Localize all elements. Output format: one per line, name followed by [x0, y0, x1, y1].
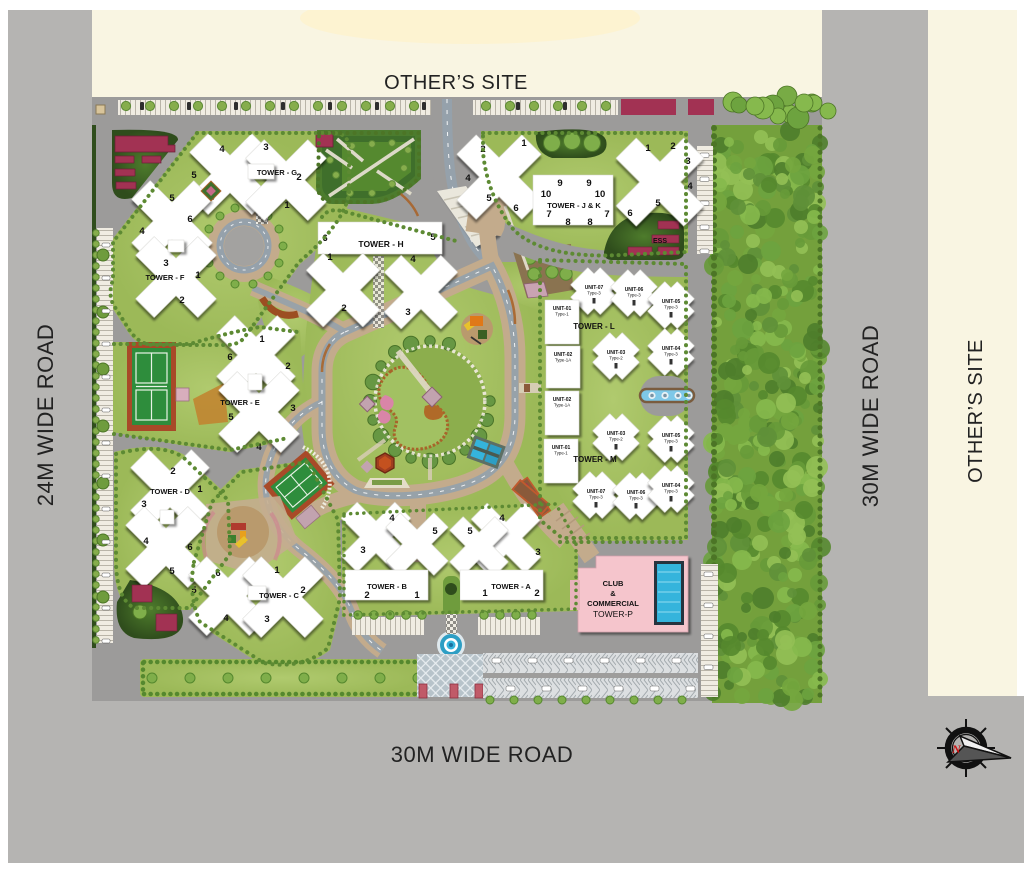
svg-text:4: 4	[465, 173, 471, 184]
svg-text:N: N	[951, 742, 962, 756]
svg-text:ESS: ESS	[653, 238, 667, 245]
svg-text:TOWER - C: TOWER - C	[259, 591, 299, 600]
svg-text:TOWER - L: TOWER - L	[573, 322, 615, 331]
svg-text:Type-2: Type-2	[609, 356, 623, 361]
svg-text:OTHER’S SITE: OTHER’S SITE	[384, 72, 528, 94]
svg-text:1: 1	[259, 334, 265, 345]
svg-text:6: 6	[227, 352, 232, 363]
svg-text:1: 1	[521, 138, 527, 149]
svg-text:3: 3	[290, 403, 295, 414]
svg-text:4: 4	[223, 613, 229, 624]
svg-text:TOWER - A: TOWER - A	[491, 582, 531, 591]
svg-text:TOWER-P: TOWER-P	[593, 609, 633, 619]
svg-text:Type-3: Type-3	[664, 439, 678, 444]
svg-text:3: 3	[360, 545, 365, 556]
svg-text:2: 2	[179, 295, 184, 306]
svg-text:6: 6	[513, 203, 518, 214]
svg-text:4: 4	[389, 513, 395, 524]
svg-text:TOWER - D: TOWER - D	[150, 487, 190, 496]
svg-text:4: 4	[139, 226, 145, 237]
svg-text:30M WIDE ROAD: 30M WIDE ROAD	[858, 325, 883, 508]
svg-text:Type-1: Type-1	[554, 451, 568, 456]
svg-text:1: 1	[195, 270, 201, 281]
svg-text:6: 6	[627, 208, 632, 219]
svg-text:Type-1: Type-1	[555, 312, 569, 317]
svg-text:CLUB: CLUB	[603, 579, 624, 588]
svg-text:9: 9	[557, 178, 562, 189]
svg-text:10: 10	[595, 189, 606, 200]
svg-text:Type-3: Type-3	[589, 495, 603, 500]
svg-text:1: 1	[284, 200, 290, 211]
svg-text:2: 2	[341, 303, 346, 314]
svg-text:5: 5	[655, 198, 661, 209]
svg-text:1: 1	[645, 143, 651, 154]
svg-text:TOWER - M: TOWER - M	[573, 455, 617, 464]
svg-text:1: 1	[414, 590, 420, 601]
svg-text:1: 1	[482, 588, 488, 599]
svg-text:COMMERCIAL: COMMERCIAL	[587, 599, 639, 608]
svg-text:1: 1	[197, 484, 203, 495]
svg-text:4: 4	[219, 144, 225, 155]
svg-text:5: 5	[169, 193, 175, 204]
svg-text:1: 1	[327, 252, 333, 263]
svg-text:2: 2	[285, 361, 290, 372]
svg-text:5: 5	[228, 412, 234, 423]
svg-text:TOWER - E: TOWER - E	[220, 398, 259, 407]
svg-text:5: 5	[467, 526, 473, 537]
svg-text:8: 8	[587, 217, 592, 228]
svg-text:Type-1A: Type-1A	[554, 403, 570, 408]
svg-text:6: 6	[187, 542, 192, 553]
svg-text:2: 2	[296, 172, 301, 183]
svg-text:Type-3: Type-3	[629, 496, 643, 501]
svg-text:&: &	[610, 589, 616, 598]
svg-text:TOWER - F: TOWER - F	[145, 273, 184, 282]
svg-text:4: 4	[143, 536, 149, 547]
svg-text:2: 2	[300, 585, 305, 596]
svg-text:5: 5	[191, 170, 197, 181]
svg-text:Type-2: Type-2	[609, 437, 623, 442]
svg-text:3: 3	[163, 258, 168, 269]
svg-text:OTHER’S SITE: OTHER’S SITE	[965, 339, 987, 483]
svg-text:30M WIDE ROAD: 30M WIDE ROAD	[391, 742, 574, 767]
svg-text:3: 3	[535, 547, 540, 558]
svg-text:3: 3	[141, 499, 146, 510]
svg-text:3: 3	[264, 614, 269, 625]
svg-text:9: 9	[586, 178, 591, 189]
svg-text:6: 6	[187, 214, 192, 225]
svg-text:5: 5	[432, 526, 438, 537]
svg-text:3: 3	[405, 307, 410, 318]
svg-text:Type-1A: Type-1A	[555, 358, 571, 363]
svg-text:2: 2	[670, 141, 675, 152]
svg-text:10: 10	[541, 189, 552, 200]
svg-text:7: 7	[546, 209, 551, 220]
svg-text:1: 1	[274, 565, 280, 576]
svg-text:Type-3: Type-3	[664, 489, 678, 494]
svg-text:TOWER - H: TOWER - H	[358, 239, 403, 249]
svg-text:5: 5	[169, 566, 175, 577]
svg-text:Type-3: Type-3	[587, 291, 601, 296]
svg-text:2: 2	[534, 588, 539, 599]
svg-text:4: 4	[687, 181, 693, 192]
svg-text:Type-3: Type-3	[627, 293, 641, 298]
svg-text:3: 3	[263, 142, 268, 153]
svg-text:Type-3: Type-3	[664, 352, 678, 357]
svg-text:TOWER - B: TOWER - B	[367, 582, 407, 591]
svg-text:4: 4	[410, 254, 416, 265]
svg-text:Type-3: Type-3	[664, 305, 678, 310]
svg-text:TOWER - G: TOWER - G	[257, 168, 297, 177]
svg-text:4: 4	[499, 513, 505, 524]
svg-text:2: 2	[170, 466, 175, 477]
svg-text:2: 2	[364, 590, 369, 601]
svg-text:24M WIDE ROAD: 24M WIDE ROAD	[33, 324, 58, 507]
svg-text:TOWER - J & K: TOWER - J & K	[547, 201, 601, 210]
svg-text:8: 8	[565, 217, 570, 228]
svg-text:7: 7	[604, 209, 609, 220]
